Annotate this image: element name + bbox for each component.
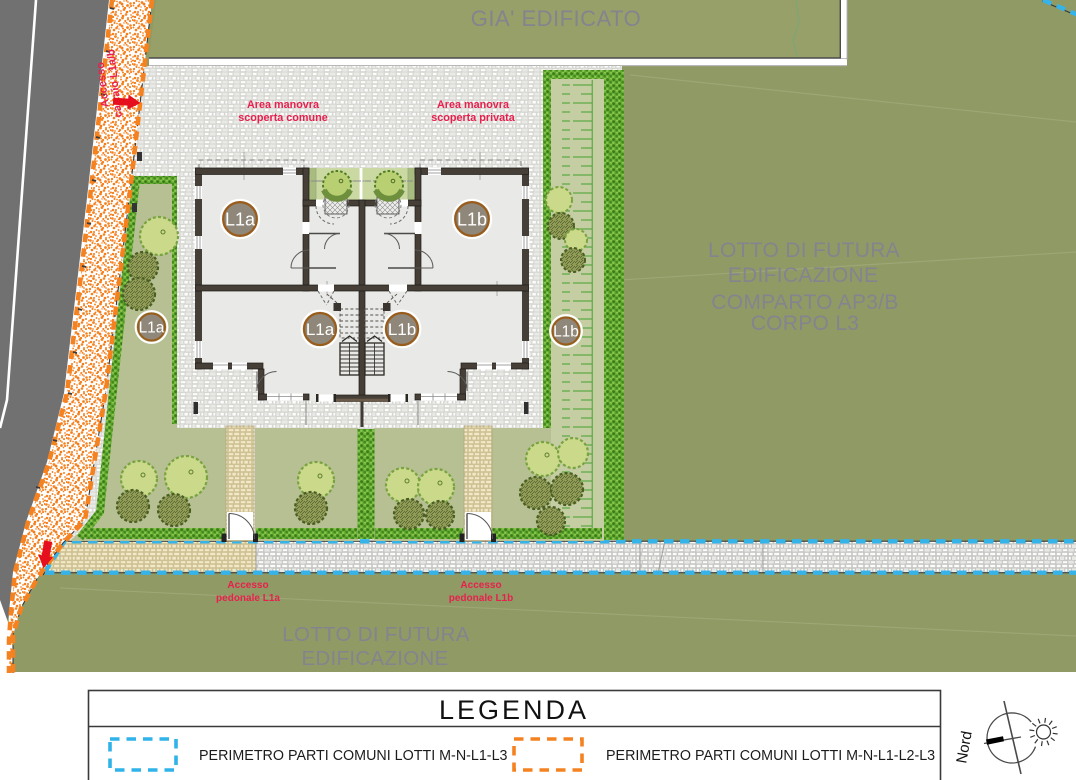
svg-text:LEGENDA: LEGENDA — [439, 695, 589, 725]
svg-text:scoperta comune: scoperta comune — [238, 112, 327, 124]
svg-text:L1a: L1a — [225, 210, 256, 230]
svg-text:PERIMETRO PARTI COMUNI LOTTI M: PERIMETRO PARTI COMUNI LOTTI M-N-L1-L2-L… — [606, 748, 935, 764]
svg-text:LOTTO DI FUTURA: LOTTO DI FUTURA — [708, 239, 900, 262]
svg-text:PERIMETRO PARTI COMUNI LOTTI M: PERIMETRO PARTI COMUNI LOTTI M-N-L1-L3 — [199, 748, 508, 764]
svg-text:Accesso: Accesso — [227, 580, 268, 591]
svg-text:L1b: L1b — [553, 324, 579, 341]
svg-text:EDIFICAZIONE: EDIFICAZIONE — [728, 264, 879, 287]
svg-text:GIA' EDIFICATO: GIA' EDIFICATO — [471, 6, 642, 31]
svg-text:CORPO L3: CORPO L3 — [751, 312, 860, 335]
svg-text:Accesso: Accesso — [460, 580, 501, 591]
svg-text:pedonale L1b: pedonale L1b — [449, 593, 513, 604]
svg-text:scoperta privata: scoperta privata — [431, 112, 515, 124]
svg-text:Area manovra: Area manovra — [437, 99, 510, 111]
svg-text:pedonale L1a: pedonale L1a — [216, 593, 280, 604]
svg-text:Area manovra: Area manovra — [247, 99, 320, 111]
svg-text:L1a: L1a — [306, 320, 335, 339]
svg-text:LOTTO DI FUTURA: LOTTO DI FUTURA — [282, 623, 470, 646]
svg-text:L1b: L1b — [388, 320, 416, 339]
svg-text:COMPARTO AP3/B: COMPARTO AP3/B — [711, 291, 898, 314]
svg-text:L1a: L1a — [139, 320, 165, 337]
svg-text:EDIFICAZIONE: EDIFICAZIONE — [301, 647, 448, 670]
svg-text:L1b: L1b — [457, 210, 487, 230]
